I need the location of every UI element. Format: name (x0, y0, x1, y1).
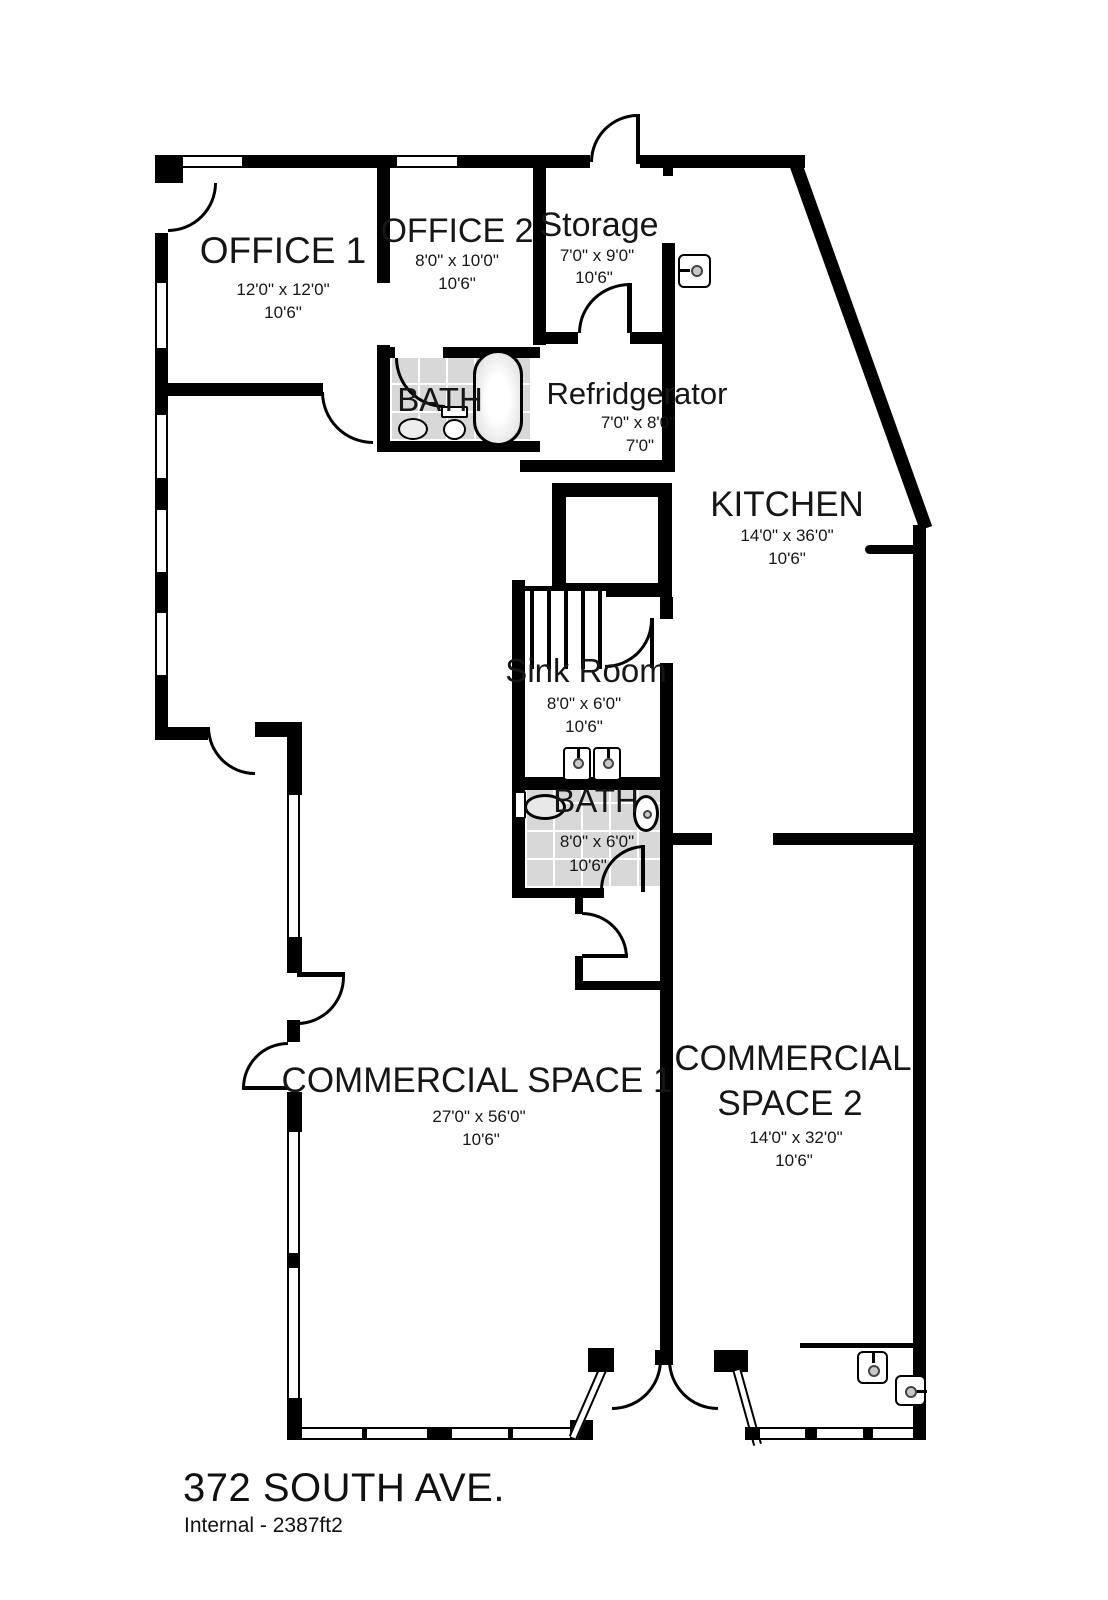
wall (287, 1020, 300, 1042)
sink-icon (563, 747, 591, 781)
door-post (714, 1350, 748, 1372)
sink-knob (905, 1386, 917, 1398)
door-post (588, 1348, 614, 1372)
wall (533, 332, 578, 344)
wall (155, 478, 168, 510)
door-arc (590, 114, 638, 162)
wall (575, 956, 583, 983)
room-label-bath-lower: BATH (553, 783, 639, 819)
counter-wall (800, 1343, 926, 1348)
door-arc (612, 1360, 662, 1410)
door-leaf (627, 283, 632, 333)
door-arc (582, 912, 628, 958)
sink-stem (577, 747, 580, 758)
floor-plan: OFFICE 1 12'0" x 12'0" 10'6" OFFICE 2 8'… (0, 0, 1108, 1600)
sink-icon (895, 1375, 926, 1406)
wall (913, 525, 926, 1440)
room-height-commercial2: 10'6" (775, 1152, 813, 1171)
wall (155, 383, 323, 396)
switch-knob (691, 265, 703, 277)
room-label-refridgerator: Refridgerator (547, 377, 728, 411)
wall (255, 722, 302, 737)
wall (242, 155, 397, 168)
door-arc (207, 727, 255, 775)
sink-stem (607, 747, 610, 758)
window (817, 1427, 863, 1440)
window (287, 795, 300, 937)
door-arc (168, 183, 217, 232)
room-label-sink-room: Sink Room (505, 653, 666, 689)
room-height-refridgerator: 7'0" (626, 437, 654, 456)
wall (520, 460, 675, 472)
window (397, 155, 457, 168)
room-label-kitchen: KITCHEN (710, 486, 864, 525)
room-height-office2: 10'6" (438, 275, 476, 294)
door-leaf (636, 114, 640, 164)
room-size-office2: 8'0" x 10'0" (415, 252, 499, 271)
sink-knob (573, 758, 584, 769)
wall-stub (865, 545, 926, 554)
sink-icon (593, 747, 621, 781)
window (367, 1427, 427, 1440)
wall (155, 348, 168, 415)
door-arc (578, 283, 630, 333)
wall (663, 168, 673, 176)
door-arc (668, 1360, 718, 1410)
wall (377, 347, 395, 358)
window (302, 1427, 362, 1440)
room-label-commercial2-line2: SPACE 2 (717, 1085, 862, 1124)
sink-icon (857, 1351, 888, 1384)
room-label-bath-upper: BATH (397, 382, 483, 418)
door-leaf (582, 954, 628, 958)
room-size-sink-room: 8'0" x 6'0" (547, 695, 621, 714)
room-label-office2: OFFICE 2 (380, 213, 533, 250)
window (155, 283, 168, 348)
room-size-commercial1: 27'0" x 56'0" (432, 1108, 525, 1127)
room-size-refridgerator: 7'0" x 8'0" (601, 414, 675, 433)
wall (377, 345, 390, 452)
room-label-commercial2-line1: COMMERCIAL (674, 1040, 911, 1079)
room-label-commercial1: COMMERCIAL SPACE 1 (282, 1062, 673, 1101)
window (760, 1427, 805, 1440)
plan-title: 372 SOUTH AVE. (183, 1466, 505, 1511)
wall (287, 1253, 300, 1268)
wall (287, 737, 302, 795)
room-size-bath-lower: 8'0" x 6'0" (560, 833, 634, 852)
wall (745, 1427, 760, 1440)
room-size-commercial2: 14'0" x 32'0" (749, 1129, 842, 1148)
wall (805, 1427, 817, 1440)
shaft-wall (658, 483, 672, 597)
wall (427, 1427, 452, 1440)
window (513, 1427, 570, 1440)
shaft-wall (552, 483, 566, 597)
wall (667, 833, 712, 845)
wall (662, 243, 675, 333)
wall (660, 597, 673, 619)
wall (863, 1427, 873, 1440)
window (155, 510, 168, 572)
door-leaf (641, 845, 645, 892)
toilet-icon (443, 419, 466, 440)
sink-knob (868, 1365, 880, 1377)
wall (287, 1398, 302, 1440)
wall (168, 727, 208, 740)
shaft-wall (552, 483, 672, 497)
wall-diagonal (788, 157, 932, 530)
room-label-office1: OFFICE 1 (200, 231, 367, 272)
window (155, 415, 168, 478)
window (155, 613, 168, 675)
window (873, 1427, 913, 1440)
wall (155, 572, 168, 613)
window (287, 1268, 300, 1398)
room-height-commercial1: 10'6" (462, 1131, 500, 1150)
wall (773, 833, 926, 845)
wall (155, 155, 183, 183)
window (287, 1132, 300, 1253)
sink-stem (872, 1351, 875, 1363)
wall (660, 663, 673, 1365)
sink-icon (398, 418, 428, 440)
wall (640, 155, 805, 168)
light-switch-icon (678, 254, 711, 288)
room-label-storage: Storage (539, 207, 658, 244)
wall (457, 155, 590, 168)
wall (512, 580, 525, 898)
room-height-storage: 10'6" (575, 269, 613, 288)
wall (533, 168, 546, 345)
wall (377, 441, 540, 452)
window (452, 1427, 508, 1440)
sink-knob (603, 758, 614, 769)
room-height-bath-lower: 10'6" (569, 857, 607, 876)
wall (155, 233, 168, 283)
door-arc (297, 977, 345, 1025)
plan-subtitle: Internal - 2387ft2 (184, 1514, 343, 1538)
switch-stem (678, 269, 690, 272)
room-size-storage: 7'0" x 9'0" (560, 247, 634, 266)
wall (287, 937, 302, 973)
room-size-office1: 12'0" x 12'0" (236, 281, 329, 300)
window (183, 155, 242, 168)
room-height-kitchen: 10'6" (768, 550, 806, 569)
door-leaf (297, 972, 345, 977)
wall (575, 981, 668, 990)
room-height-office1: 10'6" (264, 304, 302, 323)
door-arc (321, 392, 373, 444)
wall (512, 888, 604, 898)
room-height-sink-room: 10'6" (565, 718, 603, 737)
room-size-kitchen: 14'0" x 36'0" (740, 527, 833, 546)
toilet-flush (643, 810, 652, 819)
wall (155, 675, 168, 740)
